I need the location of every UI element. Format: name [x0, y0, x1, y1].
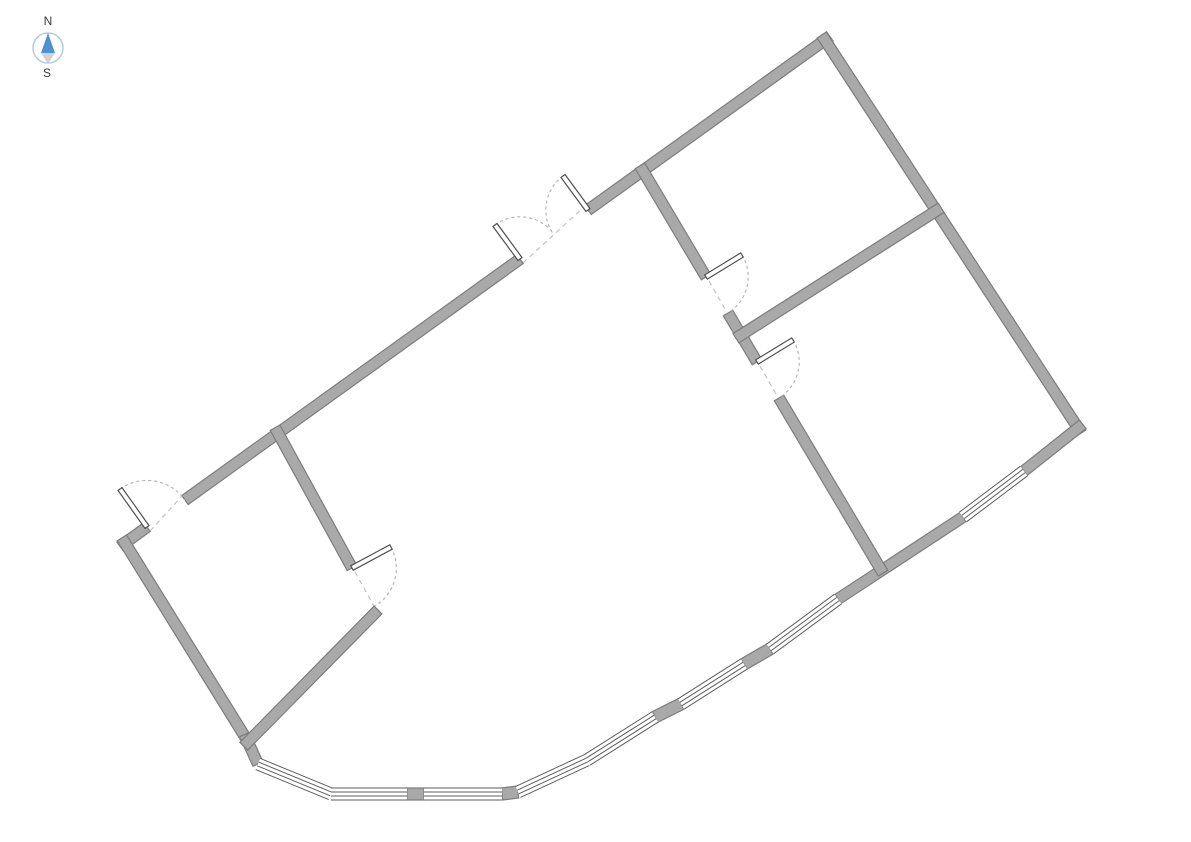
facade-window-7-glass-line-4 — [774, 604, 842, 654]
interior-wall-right-divider — [733, 203, 944, 343]
interior-wall-small-room-ne — [270, 425, 357, 570]
floorplan-svg: NS — [0, 0, 1191, 842]
facade-window-3 — [424, 788, 502, 800]
facade-window-1-glass-line-2 — [259, 762, 332, 792]
facade-window-4 — [516, 755, 590, 798]
double-door-north-right-leaf — [561, 175, 590, 212]
compass-south-label: S — [43, 66, 51, 80]
entry-door-west-swing-arc — [120, 480, 185, 500]
entry-door-west-leaf — [118, 488, 149, 529]
facade-window-6-glass-line-2 — [680, 662, 743, 702]
compass-north-arrow — [41, 33, 55, 53]
compass-north-label: N — [44, 14, 53, 28]
facade-window-7-glass-line-2 — [769, 597, 837, 647]
exterior-wall-se-upper-stub — [1021, 420, 1087, 475]
opening-lower-right-room — [760, 366, 776, 394]
facade-window-5-glass-line-1 — [584, 712, 652, 755]
opening-small-room — [355, 572, 374, 606]
facade-pillar-4 — [741, 644, 773, 669]
facade-window-8-glass-line-3 — [964, 473, 1025, 519]
interior-wall-small-room-se — [240, 606, 382, 750]
facade-pillar-1 — [407, 788, 424, 800]
windows-layer — [256, 466, 1028, 800]
lower-right-room-door-leaf — [756, 338, 795, 364]
facade-window-8-glass-line-2 — [962, 469, 1023, 515]
facade-window-4-glass-line-2 — [517, 758, 586, 790]
double-door-north-left-leaf — [493, 224, 522, 261]
doors-layer — [118, 175, 799, 607]
exterior-wall-sw — [117, 535, 255, 748]
exterior-wall-ne — [817, 32, 1086, 436]
double-door-north-left-swing-arc — [495, 217, 554, 234]
facade-window-7-glass-line-1 — [766, 594, 834, 644]
facade-window-1-glass-line-3 — [257, 766, 330, 796]
facade-window-1 — [256, 759, 334, 800]
interior-wall-central-lower — [774, 395, 888, 576]
opening-double-door-north — [523, 206, 585, 263]
openings-layer — [150, 206, 776, 606]
interior-wall-central-upper — [635, 163, 711, 280]
small-room-door-leaf — [351, 545, 392, 570]
facade-window-4-glass-line-3 — [519, 762, 588, 794]
facade-window-5-glass-line-2 — [586, 715, 654, 758]
facade-window-7-glass-line-3 — [771, 601, 839, 651]
facade-window-8 — [959, 466, 1027, 522]
facade-pillar-3 — [652, 699, 683, 723]
compass: NS — [33, 14, 63, 80]
floorplan-page: NS — [0, 0, 1191, 842]
opening-entry-west — [150, 496, 182, 531]
walls-layer — [117, 32, 1086, 800]
exterior-wall-nw-upper — [585, 32, 833, 215]
exterior-wall-nw-main — [182, 255, 523, 505]
facade-window-8-glass-line-4 — [967, 476, 1028, 522]
facade-pillar-2 — [501, 786, 518, 800]
facade-window-2 — [331, 788, 407, 800]
facade-window-7 — [766, 594, 841, 654]
double-door-north-right-swing-arc — [546, 176, 563, 234]
facade-window-8-glass-line-1 — [959, 466, 1020, 512]
opening-upper-right-room — [709, 281, 725, 309]
upper-right-room-door-leaf — [705, 253, 744, 279]
facade-window-5-glass-line-4 — [590, 722, 658, 765]
facade-window-5-glass-line-3 — [588, 719, 656, 762]
facade-window-6-glass-line-3 — [682, 666, 745, 706]
